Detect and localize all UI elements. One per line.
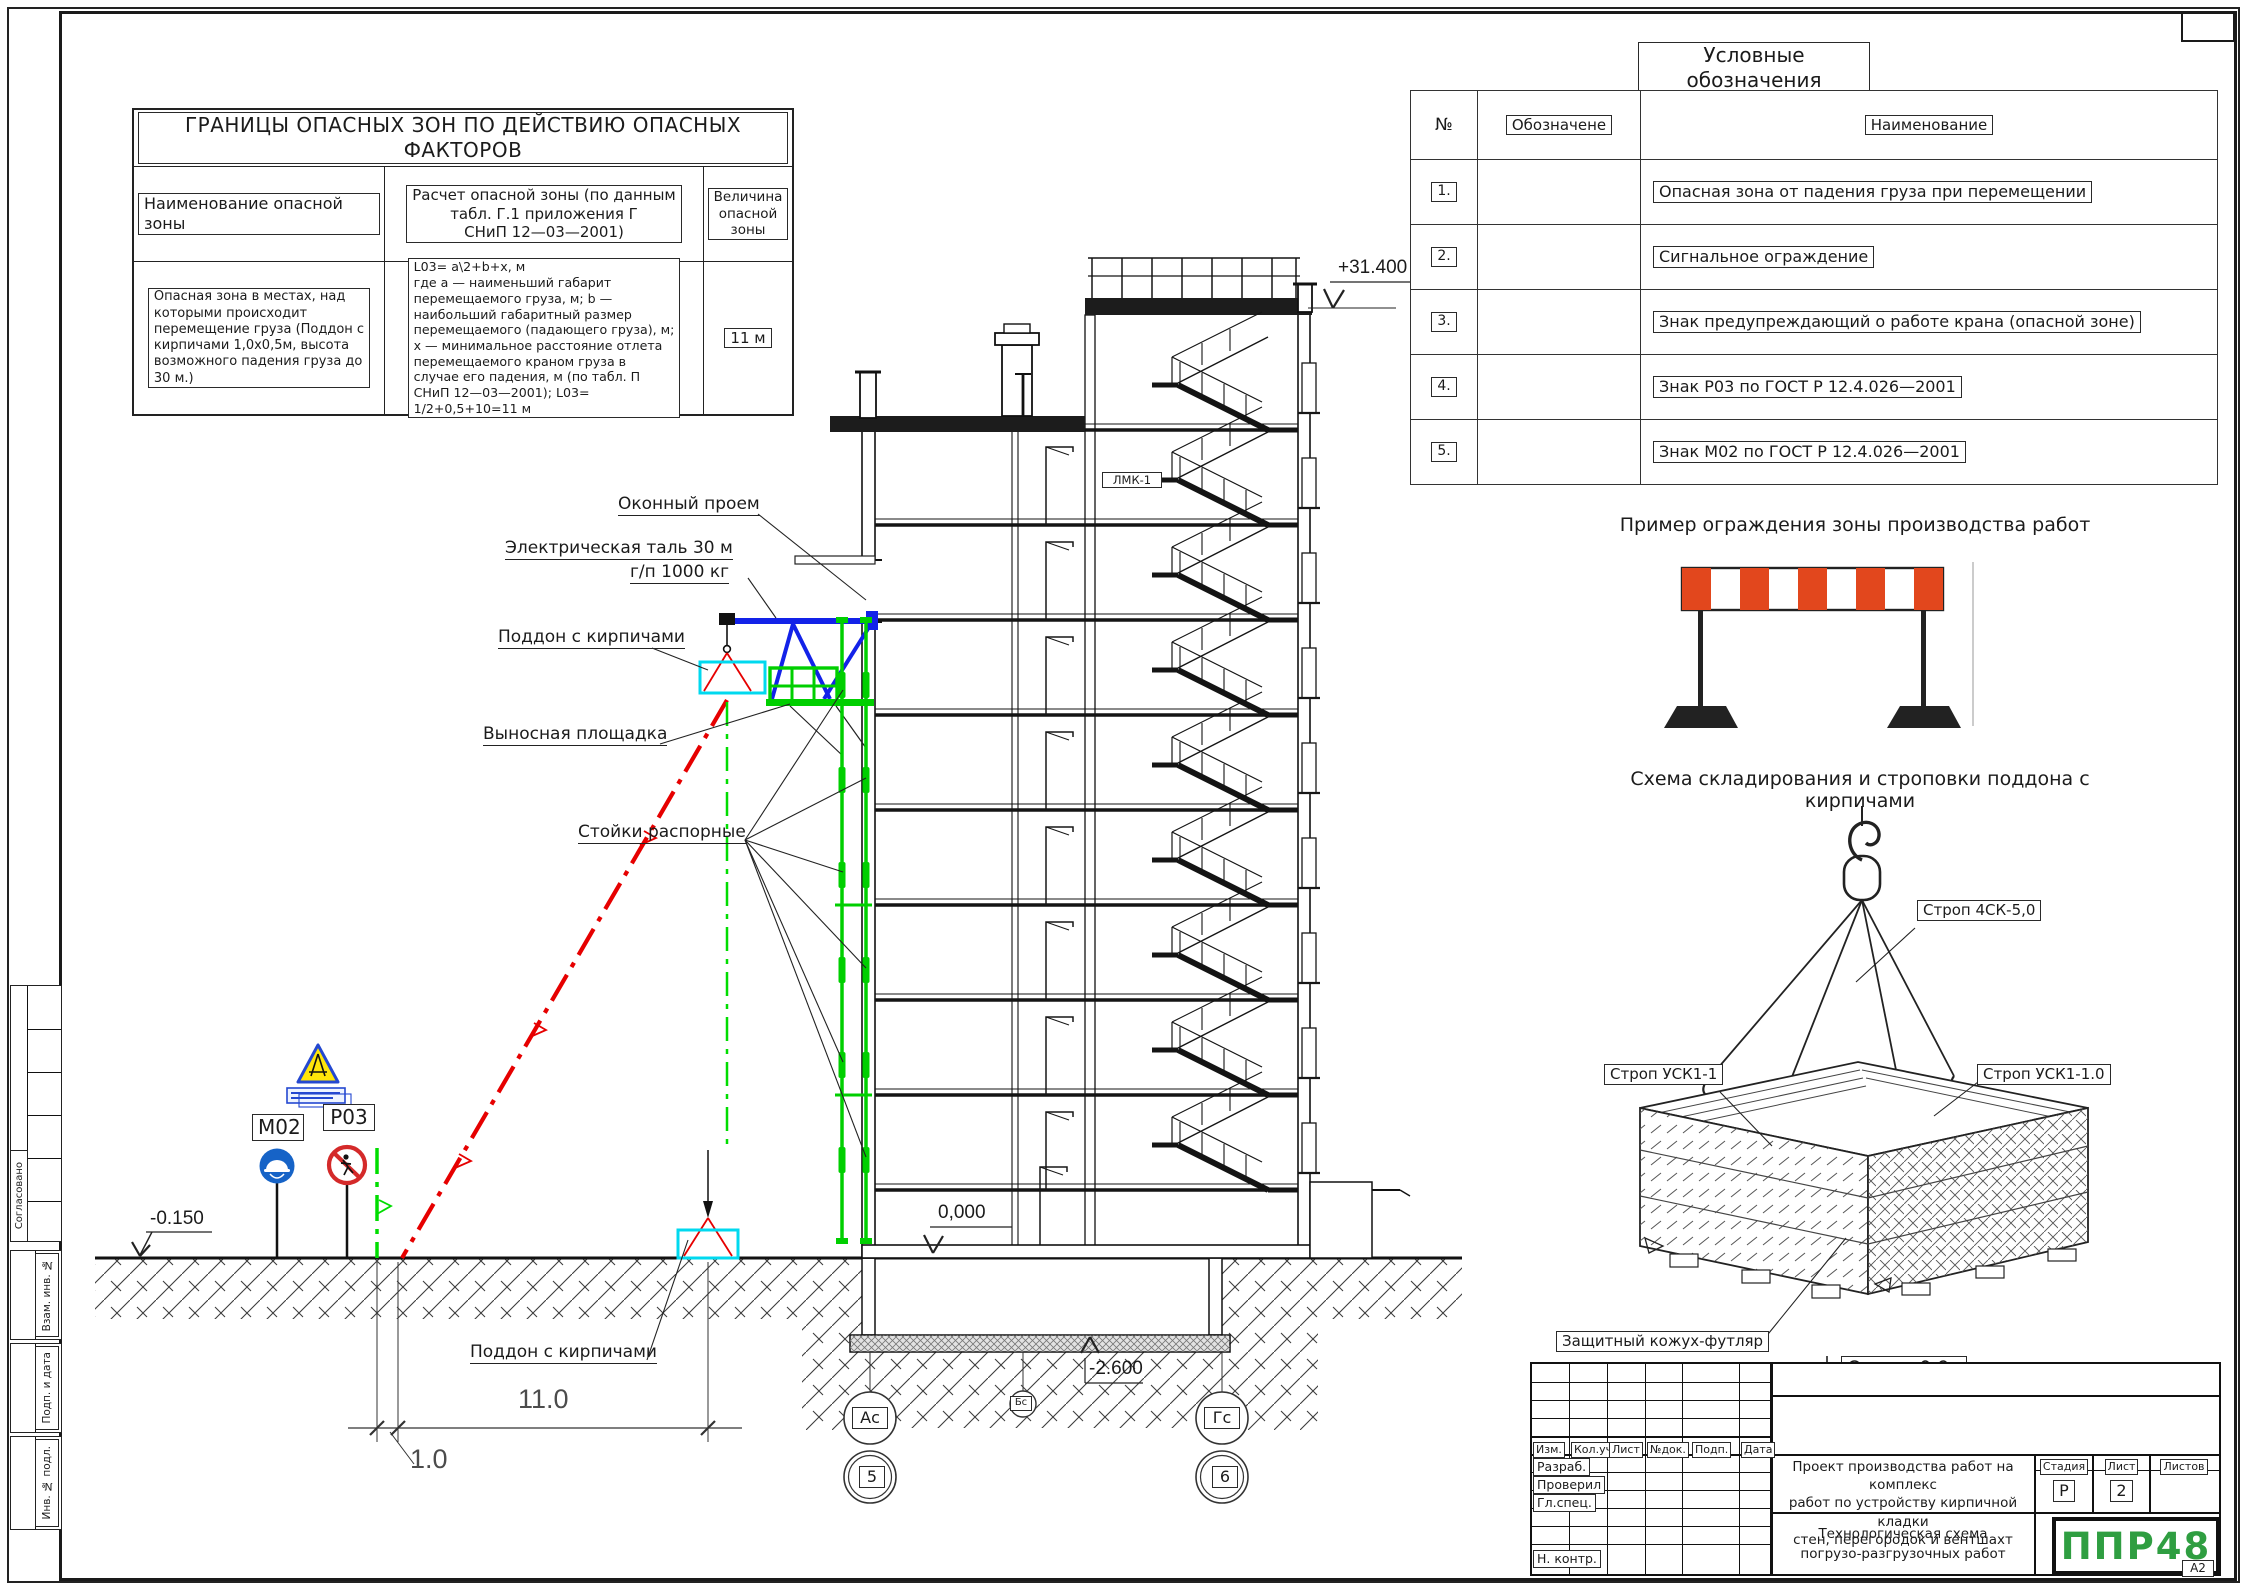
podp-cell: Подп. и дата (10, 1343, 62, 1433)
approved-label-cell: Согласовано (10, 1150, 28, 1242)
hoist-label-line2: г/п 1000 кг (630, 562, 729, 584)
window-opening-label: Оконный проем (618, 494, 760, 516)
elevation-base: -2.600 (1089, 1358, 1143, 1380)
tb-col-ndok: №док. (1647, 1442, 1689, 1458)
legend-name: Знак предупреждающий о работе крана (опа… (1653, 311, 2141, 333)
crane-warning-icon (1478, 355, 1641, 419)
danger-col3-header: Величина опасной зоны (704, 167, 792, 262)
approval-stamp-grid: Согласовано (10, 985, 62, 1242)
danger-col2-header: Расчет опасной зоны (по данным табл. Г.1… (385, 167, 704, 262)
danger-col2-body: L03= a\2+b+x, м где a — наименьший габар… (385, 262, 704, 414)
danger-line-symbol (1478, 160, 1641, 224)
legend-row-5: 5. Знак М02 по ГОСТ Р 12.4.026—2001 (1411, 420, 2217, 484)
legend-num: 5. (1431, 442, 1456, 462)
tb-col-podp: Подп. (1692, 1442, 1731, 1458)
axis-label-5: 5 (859, 1466, 885, 1488)
approved-label: Согласовано (14, 1162, 25, 1229)
elevation-ground: -0.150 (150, 1208, 204, 1230)
elevation-top: +31.400 (1338, 257, 1407, 279)
sling-scheme-title: Схема складирования и строповки поддона … (1580, 768, 2140, 812)
legend-name: Знак М02 по ГОСТ Р 12.4.026—2001 (1653, 441, 1966, 463)
danger-table-title-text: ГРАНИЦЫ ОПАСНЫХ ЗОН ПО ДЕЙСТВИЮ ОПАСНЫХ … (138, 112, 788, 164)
podp-label: Подп. и дата (41, 1352, 53, 1424)
hard-hat-icon (1478, 420, 1641, 484)
legend-num: 3. (1431, 312, 1456, 332)
legend-num: 1. (1431, 182, 1456, 202)
inv-cell: Инв. № подл. (10, 1436, 62, 1530)
title-block: Изм. Кол.уч. Лист №док. Подп. Дата Разра… (1530, 1362, 2221, 1576)
legend-row-2: 2. Сигнальное ограждение (1411, 225, 2217, 290)
legend-col-num: № (1411, 91, 1478, 159)
strop-main-label: Строп 4СК-5,0 (1917, 900, 2041, 921)
drawing-sheet: ГРАНИЦЫ ОПАСНЫХ ЗОН ПО ДЕЙСТВИЮ ОПАСНЫХ … (0, 0, 2245, 1588)
vzam-label: Взам. инв. № (41, 1259, 53, 1331)
dimension-11: 11.0 (518, 1384, 569, 1415)
hoist-label-line1: Электрическая таль 30 м (505, 538, 733, 560)
corner-box (2181, 12, 2235, 42)
legend-row-4: 4. Знак Р03 по ГОСТ Р 12.4.026—2001 (1411, 355, 2217, 420)
tb-sheet-value: 2 (2094, 1480, 2149, 1502)
legend-name: Опасная зона от падения груза при переме… (1653, 181, 2092, 203)
elevation-zero: 0,000 (938, 1202, 986, 1224)
sign-p03-label: Р03 (323, 1104, 375, 1131)
legend-table: № Обозначене Наименование 1. Опасная зон… (1410, 90, 2218, 485)
legend-name: Знак Р03 по ГОСТ Р 12.4.026—2001 (1653, 376, 1962, 398)
pallet-lower-label: Поддон с кирпичами (470, 1342, 657, 1364)
strop-right-label: Строп УСК1-1.0 (1977, 1064, 2111, 1085)
tb-row-razrab: Разраб. (1533, 1458, 1590, 1476)
dimension-1: 1.0 (410, 1444, 448, 1475)
tb-sheets-header: Листов (2151, 1455, 2217, 1475)
legend-row-1: 1. Опасная зона от падения груза при пер… (1411, 160, 2217, 225)
tb-doc-title: Технологическая схема погрузо-разгрузочн… (1775, 1524, 2031, 1565)
tb-stage-header: Стадия (2036, 1455, 2092, 1475)
legend-header: № Обозначене Наименование (1411, 91, 2217, 160)
danger-table-title: ГРАНИЦЫ ОПАСНЫХ ЗОН ПО ДЕЙСТВИЮ ОПАСНЫХ … (134, 110, 792, 167)
axis-label-6: 6 (1212, 1466, 1238, 1488)
no-pedestrian-icon (1478, 290, 1641, 354)
tb-row-proveril: Проверил (1533, 1476, 1605, 1494)
inv-label: Инв. № подл. (41, 1446, 53, 1520)
axis-label-bs: Бс (1010, 1396, 1032, 1411)
pallet-upper-label: Поддон с кирпичами (498, 627, 685, 649)
sign-m02-label: М02 (252, 1114, 304, 1141)
signal-fence-symbol (1478, 225, 1641, 289)
danger-col1-body: Опасная зона в местах, над которыми прои… (134, 262, 385, 414)
posts-label: Стойки распорные (578, 822, 746, 844)
danger-col1-header: Наименование опасной зоны (134, 167, 385, 262)
tb-sheet-header: Лист (2094, 1455, 2149, 1475)
legend-title: Условные обозначения (1638, 42, 1870, 94)
lmk-label: ЛМК-1 (1102, 472, 1162, 488)
danger-zones-table: ГРАНИЦЫ ОПАСНЫХ ЗОН ПО ДЕЙСТВИЮ ОПАСНЫХ … (132, 108, 794, 416)
legend-num: 2. (1431, 247, 1456, 267)
format-label: А2 (2182, 1560, 2214, 1577)
platform-label: Выносная площадка (483, 724, 667, 746)
legend-num: 4. (1431, 377, 1456, 397)
tb-stage-value: Р (2036, 1480, 2092, 1502)
tb-col-data: Дата (1741, 1442, 1775, 1458)
legend-col-name: Наименование (1641, 91, 2217, 159)
danger-col3-body: 11 м (704, 262, 792, 414)
tb-row-nkontr: Н. контр. (1533, 1550, 1601, 1568)
strop-left-label: Строп УСК1-1 (1604, 1064, 1723, 1085)
axis-label-as: Ас (852, 1407, 888, 1429)
tb-row-glspec: Гл.спец. (1533, 1494, 1596, 1512)
vzam-cell: Взам. инв. № (10, 1250, 62, 1340)
legend-row-3: 3. Знак предупреждающий о работе крана (… (1411, 290, 2217, 355)
fence-example-title: Пример ограждения зоны производства рабо… (1600, 514, 2110, 536)
legend-col-sym: Обозначене (1478, 91, 1641, 159)
axis-label-gs: Гс (1204, 1407, 1240, 1429)
legend-name: Сигнальное ограждение (1653, 246, 1874, 268)
tb-col-list: Лист (1609, 1442, 1643, 1458)
cover-label: Защитный кожух-футляр (1556, 1331, 1769, 1352)
